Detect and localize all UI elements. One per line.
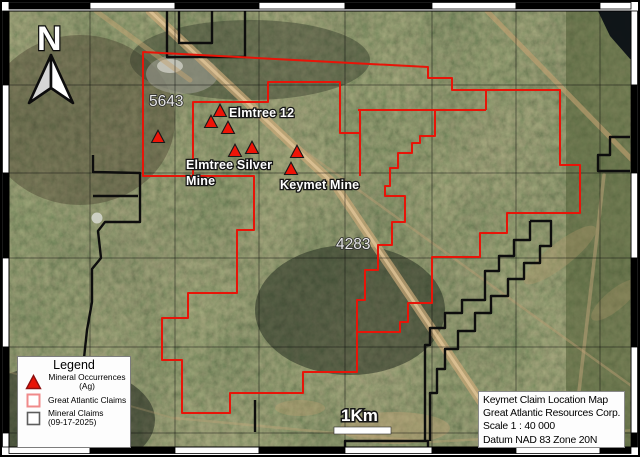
legend-title: Legend [18,358,130,372]
claim-number-5643: 5643 [149,93,183,110]
legend-item-label-2: (09-17-2025) [48,418,103,427]
company-name: Great Atlantic Resources Corp. [483,407,620,420]
legend-item-label: Great Atlantic Claims [48,396,126,405]
black-outline-square-icon [18,411,48,426]
map-info-box: Keymet Claim Location Map Great Atlantic… [478,391,625,448]
red-triangle-icon [18,374,48,390]
label-elmtree-12: Elmtree 12 [229,106,294,120]
legend-box: Legend Mineral Occurrences (Ag) Great At… [17,356,131,448]
label-elmtree-silver-line1: Elmtree Silver [186,158,272,172]
scale-bar-segment [334,427,391,434]
north-arrow-label: N [37,20,62,58]
bottom-margin [0,457,640,462]
map-datum: Datum NAD 83 Zone 20N [483,434,620,447]
scale-bar-label: 1Km [341,406,378,425]
legend-item-mineral-occurrences: Mineral Occurrences (Ag) [18,373,130,392]
red-outline-square-icon [18,393,48,408]
map-scale: Scale 1 : 40 000 [483,420,620,433]
map-title: Keymet Claim Location Map [483,394,620,407]
label-elmtree-silver-line2: Mine [186,174,215,188]
label-keymet-mine: Keymet Mine [280,178,359,192]
legend-item-label-2: (Ag) [48,382,126,391]
claim-number-4283: 4283 [336,236,370,253]
legend-item-mineral-claims: Mineral Claims (09-17-2025) [18,409,130,428]
claim-location-map: 5643 4283 Elmtree 12 Elmtree Silver Mine… [0,0,640,462]
legend-item-great-atlantic-claims: Great Atlantic Claims [18,393,130,408]
